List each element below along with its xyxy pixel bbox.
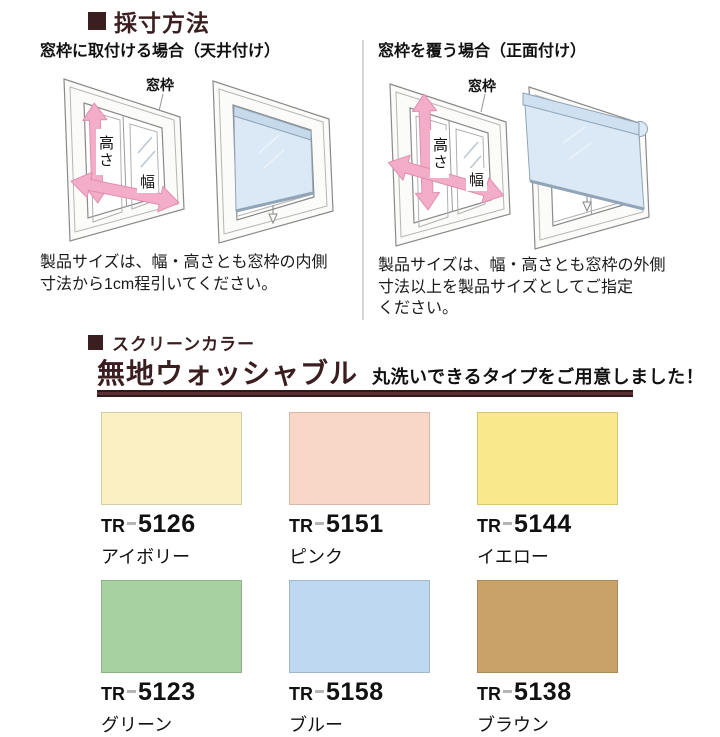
front-mount-result-illustration — [523, 81, 668, 253]
color-code: TR5123 — [101, 678, 242, 710]
color-swatch-item: TR5138 ブラウン — [477, 580, 618, 737]
product-tagline: 丸洗いできるタイプをご用意しました！ — [372, 363, 704, 389]
code-number: 5158 — [326, 678, 384, 706]
color-code: TR5158 — [289, 678, 430, 710]
code-prefix: TR — [101, 516, 125, 536]
color-name: グリーン — [101, 711, 242, 737]
color-name: ブラウン — [477, 711, 618, 737]
front-mount-subtitle: 窓枠を覆う場合（正面付け） — [378, 37, 586, 61]
roller-screen-over-frame-illustration — [523, 81, 668, 253]
color-swatch-item: TR5158 ブルー — [289, 580, 430, 737]
front-mount-caption: 製品サイズは、幅・高さとも窓枠の外側 寸法以上を製品サイズとしてご指定 ください… — [378, 255, 666, 320]
color-code: TR5144 — [477, 510, 618, 542]
width-label: 幅 — [466, 168, 487, 191]
headline-underline — [97, 390, 633, 397]
color-swatch — [101, 412, 242, 505]
roller-screen-inside-frame-illustration — [207, 75, 352, 247]
color-swatch-grid: TR5126 アイボリー TR5151 ピンク TR5144 イエロー TR51… — [101, 412, 618, 737]
color-swatch — [477, 580, 618, 673]
front-mount-measure-illustration: 窓枠 高さ 幅 — [384, 78, 529, 250]
height-label: 高さ — [96, 129, 115, 175]
code-dash-icon — [503, 522, 512, 525]
product-headline: 無地ウォッシャブル — [97, 352, 358, 392]
color-swatch-item: TR5126 アイボリー — [101, 412, 242, 569]
window-frame-pointer-line — [159, 94, 163, 111]
code-number: 5126 — [138, 510, 196, 538]
color-name: ピンク — [289, 543, 430, 569]
ceiling-mount-result-illustration — [207, 75, 352, 247]
code-prefix: TR — [477, 684, 501, 704]
color-swatch — [289, 580, 430, 673]
front-mount-column: 窓枠を覆う場合（正面付け） 窓枠 高さ 幅 — [376, 35, 706, 325]
color-code: TR5138 — [477, 678, 618, 710]
window-frame-label: 窓枠 — [468, 76, 496, 96]
window-frame-arrows-inside-illustration — [58, 73, 203, 245]
width-label: 幅 — [137, 170, 158, 193]
measure-section-title: 採寸方法 — [114, 4, 210, 38]
code-number: 5138 — [514, 678, 572, 706]
code-dash-icon — [127, 522, 136, 525]
code-dash-icon — [503, 690, 512, 693]
section-square-icon — [88, 335, 103, 350]
product-headline-row: 無地ウォッシャブル 丸洗いできるタイプをご用意しました！ — [97, 352, 704, 392]
code-prefix: TR — [289, 684, 313, 704]
measure-section-header: 採寸方法 — [88, 4, 210, 38]
color-swatch-item: TR5123 グリーン — [101, 580, 242, 737]
color-code: TR5151 — [289, 510, 430, 542]
code-dash-icon — [315, 522, 324, 525]
color-name: アイボリー — [101, 543, 242, 569]
ceiling-mount-column: 窓枠に取付ける場合（天井付け） 窓枠 高さ 幅 — [40, 35, 360, 320]
color-swatch-item: TR5151 ピンク — [289, 412, 430, 569]
color-code: TR5126 — [101, 510, 242, 542]
code-dash-icon — [127, 690, 136, 693]
ceiling-mount-measure-illustration: 窓枠 高さ 幅 — [58, 73, 203, 245]
color-swatch — [289, 412, 430, 505]
height-label: 高さ — [430, 130, 449, 178]
code-number: 5123 — [138, 678, 196, 706]
color-swatch — [477, 412, 618, 505]
code-prefix: TR — [101, 684, 125, 704]
code-dash-icon — [315, 690, 324, 693]
code-prefix: TR — [289, 516, 313, 536]
color-name: イエロー — [477, 543, 618, 569]
code-number: 5144 — [514, 510, 572, 538]
window-frame-pointer-line — [481, 94, 485, 112]
window-frame-arrows-outside-illustration — [384, 78, 529, 250]
ceiling-mount-subtitle: 窓枠に取付ける場合（天井付け） — [40, 37, 280, 61]
code-number: 5151 — [326, 510, 384, 538]
code-prefix: TR — [477, 516, 501, 536]
color-swatch — [101, 580, 242, 673]
color-name: ブルー — [289, 711, 430, 737]
window-frame-label: 窓枠 — [146, 75, 174, 95]
section-square-icon — [88, 12, 106, 30]
ceiling-mount-caption: 製品サイズは、幅・高さとも窓枠の内側 寸法から1cm程引いてください。 — [40, 252, 328, 295]
color-swatch-item: TR5144 イエロー — [477, 412, 618, 569]
column-divider — [362, 40, 364, 320]
